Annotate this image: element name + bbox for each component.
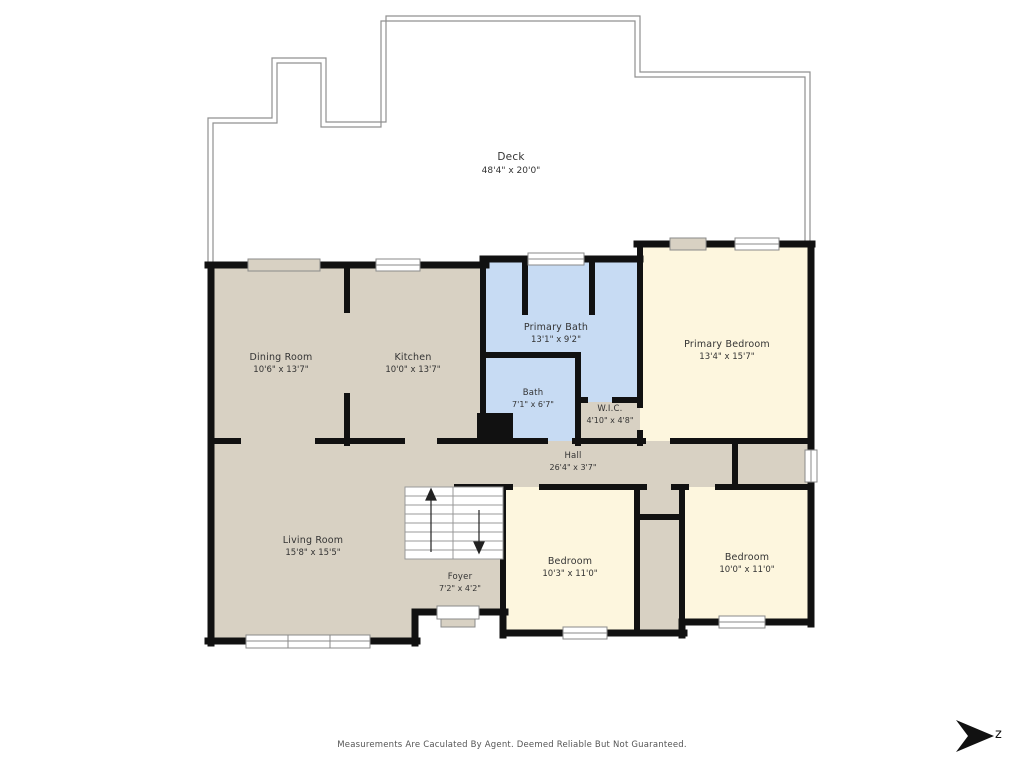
room-label-bedroom1: Bedroom 10'3" x 11'0" xyxy=(542,556,597,580)
floor-plan-page: Deck 48'4" x 20'0" Dining Room 10'6" x 1… xyxy=(0,0,1024,768)
room-label-wic: W.I.C. 4'10" x 4'8" xyxy=(586,404,633,426)
deck-outline xyxy=(208,16,810,265)
bedroom2-window xyxy=(719,616,765,628)
closet-column-floor xyxy=(637,487,682,635)
chimney-block xyxy=(477,413,513,439)
hall-window xyxy=(805,450,817,482)
room-primary-bath-annex-floor xyxy=(578,358,640,402)
room-label-bath: Bath 7'1" x 6'7" xyxy=(512,388,554,410)
room-label-dining: Dining Room 10'6" x 13'7" xyxy=(250,352,313,376)
room-label-primary-bath: Primary Bath 13'1" x 9'2" xyxy=(524,322,588,346)
disclaimer-text: Measurements Are Caculated By Agent. Dee… xyxy=(0,740,1024,750)
patio-door xyxy=(248,259,320,271)
room-label-primary-bedroom: Primary Bedroom 13'4" x 15'7" xyxy=(684,339,770,363)
room-label-foyer: Foyer 7'2" x 4'2" xyxy=(439,572,481,594)
primary-bedroom-opening xyxy=(670,238,706,250)
room-label-bedroom2: Bedroom 10'0" x 11'0" xyxy=(719,552,774,576)
room-label-hall: Hall 26'4" x 3'7" xyxy=(549,451,596,473)
staircase xyxy=(405,487,503,559)
floor-plan-drawing xyxy=(0,0,1024,768)
front-door xyxy=(437,606,479,627)
primary-bedroom-window xyxy=(735,238,779,250)
room-label-deck: Deck 48'4" x 20'0" xyxy=(482,151,541,177)
room-label-kitchen: Kitchen 10'0" x 13'7" xyxy=(385,352,440,376)
room-label-living: Living Room 15'8" x 15'5" xyxy=(283,535,344,559)
bedroom1-window xyxy=(563,627,607,639)
primary-bath-window xyxy=(528,253,584,265)
living-room-window xyxy=(246,635,370,648)
kitchen-window xyxy=(376,259,420,271)
